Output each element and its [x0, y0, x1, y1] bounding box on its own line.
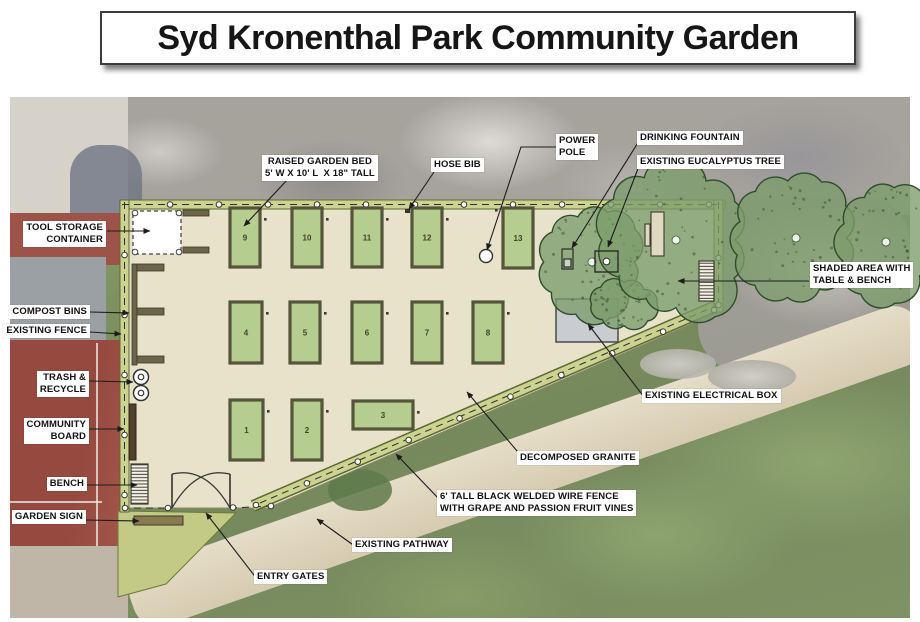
label-raised-garden-bed: RAISED GARDEN BED 5' W X 10' L X 18" TAL… — [262, 155, 378, 181]
label-wire-fence: 6' TALL BLACK WELDED WIRE FENCE WITH GRA… — [437, 490, 636, 516]
existing-pathway-photo — [122, 299, 910, 618]
label-community-board: COMMUNITY BOARD — [24, 418, 89, 444]
label-bench: BENCH — [47, 477, 87, 491]
label-eucalyptus-tree: EXISTING EUCALYPTUS TREE — [637, 155, 784, 169]
label-compost-bins: COMPOST BINS — [9, 305, 90, 319]
label-entry-gates: ENTRY GATES — [254, 570, 327, 584]
label-tool-storage: TOOL STORAGE CONTAINER — [23, 221, 106, 247]
court-line — [96, 343, 98, 546]
label-drinking-fountain: DRINKING FOUNTAIN — [637, 131, 743, 145]
label-hose-bib: HOSE BIB — [431, 158, 484, 172]
page-title: Syd Kronenthal Park Community Garden — [100, 11, 856, 65]
rock-patch — [640, 349, 716, 379]
court-path — [10, 546, 128, 618]
label-power-pole: POWER POLE — [556, 134, 598, 160]
court-line — [10, 501, 102, 503]
label-existing-fence: EXISTING FENCE — [3, 324, 90, 338]
label-trash-recycle: TRASH & RECYCLE — [37, 371, 89, 397]
label-garden-sign: GARDEN SIGN — [12, 510, 86, 524]
label-shaded-area: SHADED AREA WITH TABLE & BENCH — [810, 262, 913, 288]
label-electrical-box: EXISTING ELECTRICAL BOX — [642, 389, 781, 403]
aerial-photo — [10, 97, 910, 618]
grass-patch — [328, 469, 392, 511]
site-plan-page: 12345678910111213 TOOL STORAGE CONTAINER… — [0, 0, 920, 622]
label-existing-pathway: EXISTING PATHWAY — [352, 538, 452, 552]
label-decomposed-granite: DECOMPOSED GRANITE — [517, 451, 639, 465]
